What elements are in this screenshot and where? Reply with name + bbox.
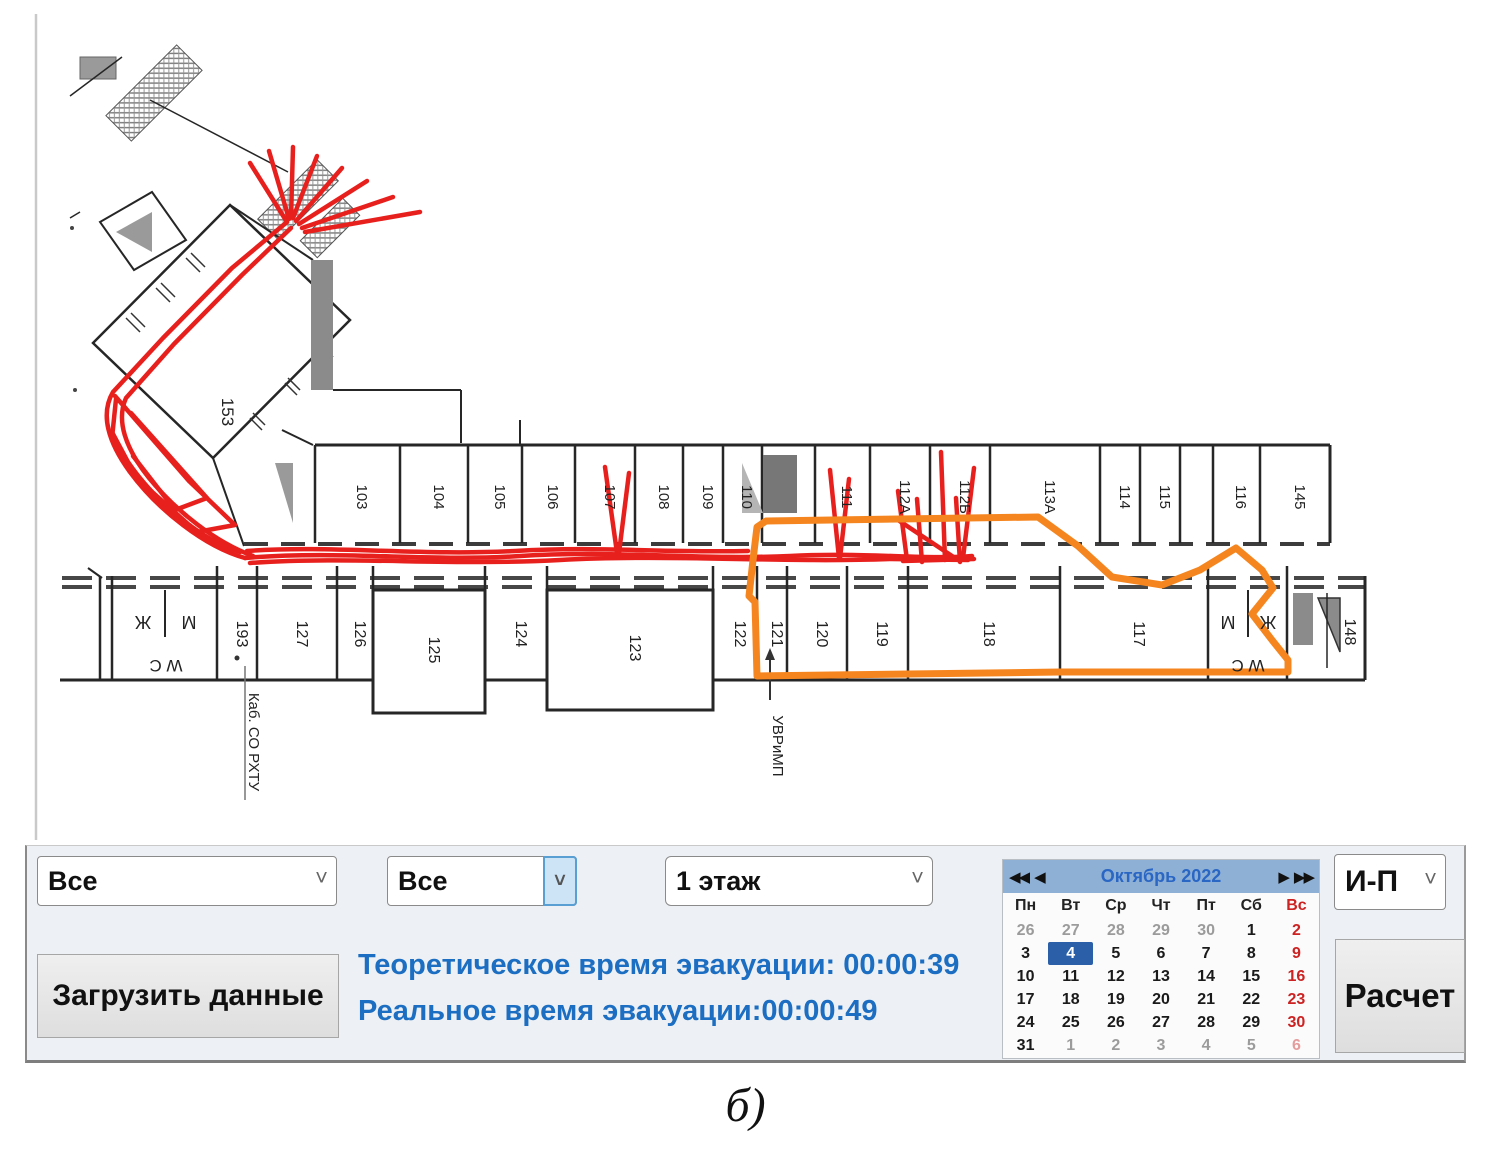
calendar-day[interactable]: 25	[1048, 1011, 1093, 1034]
group-filter-select[interactable]: Все ˅	[387, 856, 577, 906]
room-label: 119	[873, 621, 890, 647]
room-label: 122	[731, 621, 748, 648]
calendar-day[interactable]: 20	[1138, 988, 1183, 1011]
calendar-header: ◀◀ ◀ Октябрь 2022 ▶ ▶▶	[1003, 860, 1319, 893]
calendar-day[interactable]: 8	[1229, 942, 1274, 965]
fast-next-month-icon[interactable]: ▶▶	[1291, 868, 1319, 886]
room-label: УВРиМП	[769, 715, 786, 776]
weekday-label: Чт	[1138, 893, 1183, 919]
calendar-day[interactable]: 10	[1003, 965, 1048, 988]
room-label: 126	[351, 621, 368, 648]
calendar-day[interactable]: 5	[1229, 1034, 1274, 1057]
calendar-day[interactable]: 22	[1229, 988, 1274, 1011]
fast-prev-month-icon[interactable]: ◀◀	[1003, 868, 1031, 886]
calendar-day[interactable]: 2	[1274, 919, 1319, 942]
calendar-weekdays: ПнВтСрЧтПтСбВс	[1003, 893, 1319, 919]
calendar-day[interactable]: 24	[1003, 1011, 1048, 1034]
calendar-day[interactable]: 5	[1093, 942, 1138, 965]
calendar-day[interactable]: 12	[1093, 965, 1138, 988]
room-label: 148	[1341, 619, 1358, 646]
room-label: 113А	[1041, 480, 1058, 514]
weekday-label: Ср	[1093, 893, 1138, 919]
room-label: Каб. СО РХТУ	[245, 693, 262, 792]
people-filter-select[interactable]: Все ˅	[37, 856, 337, 906]
room-label: 123	[626, 635, 643, 662]
calendar-day[interactable]: 6	[1274, 1034, 1319, 1057]
calendar-day[interactable]: 16	[1274, 965, 1319, 988]
calendar-day[interactable]: 19	[1093, 988, 1138, 1011]
annotation-leaders	[235, 648, 776, 800]
room-label: 108	[655, 484, 672, 509]
calendar-day[interactable]: 6	[1138, 942, 1183, 965]
diagonal-wing	[70, 45, 520, 546]
group-filter-value: Все	[398, 866, 448, 897]
room-label: 114	[1116, 485, 1133, 509]
chevron-down-icon: ˅	[1424, 866, 1437, 892]
calendar-day[interactable]: 27	[1138, 1011, 1183, 1034]
load-data-button[interactable]: Загрузить данные	[37, 954, 339, 1038]
calendar-day[interactable]: 1	[1229, 919, 1274, 942]
calendar-day[interactable]: 23	[1274, 988, 1319, 1011]
calendar-day[interactable]: 21	[1184, 988, 1229, 1011]
room-label: 117	[1130, 621, 1147, 647]
calendar-day[interactable]: 3	[1138, 1034, 1183, 1057]
calendar-day[interactable]: 29	[1138, 919, 1183, 942]
room-label: М	[1221, 612, 1236, 632]
evacuation-times: Теоретическое время эвакуации: 00:00:39 …	[358, 942, 1018, 1034]
weekday-label: Вс	[1274, 893, 1319, 919]
calendar-day[interactable]: 31	[1003, 1034, 1048, 1057]
room-label: 106	[544, 484, 561, 509]
room-label: 124	[512, 621, 529, 648]
room-label: 145	[1291, 484, 1308, 509]
calendar-day[interactable]: 17	[1003, 988, 1048, 1011]
floor-select[interactable]: 1 этаж ˅	[665, 856, 933, 906]
calendar-day[interactable]: 26	[1093, 1011, 1138, 1034]
weekday-label: Пн	[1003, 893, 1048, 919]
weekday-label: Пт	[1184, 893, 1229, 919]
room-label: 118	[980, 621, 997, 647]
figure-caption: б)	[0, 1078, 1491, 1133]
calendar-day[interactable]: 13	[1138, 965, 1183, 988]
room-label: 109	[699, 484, 716, 509]
calendar-day[interactable]: 29	[1229, 1011, 1274, 1034]
theoretical-time-label: Теоретическое время эвакуации: 00:00:39	[358, 942, 1018, 988]
mode-select-value: И-П	[1345, 865, 1398, 899]
floor-plan: 103104105106107108109110111112А112Б113А1…	[0, 0, 1491, 845]
room-label: 105	[491, 484, 508, 509]
room-label: 112А	[896, 480, 913, 514]
room-label: 193	[233, 621, 250, 648]
floor-select-value: 1 этаж	[676, 866, 760, 897]
mode-select[interactable]: И-П ˅	[1334, 854, 1446, 910]
room-label: 127	[293, 621, 310, 648]
room-label: М	[182, 612, 197, 632]
weekday-label: Вт	[1048, 893, 1093, 919]
chevron-down-icon: ˅	[911, 865, 924, 891]
calendar-day[interactable]: 28	[1093, 919, 1138, 942]
room-label: 115	[1156, 485, 1173, 509]
calendar-day[interactable]: 7	[1184, 942, 1229, 965]
chevron-down-icon: ˅	[315, 865, 328, 891]
calendar-day[interactable]: 28	[1184, 1011, 1229, 1034]
calendar-day[interactable]: 1	[1048, 1034, 1093, 1057]
room-label: 121	[768, 621, 785, 648]
room-label: W C	[1231, 656, 1264, 675]
room-label: 112Б	[956, 480, 973, 514]
prev-month-icon[interactable]: ◀	[1031, 868, 1047, 886]
calendar-day[interactable]: 26	[1003, 919, 1048, 942]
calendar-day[interactable]: 4	[1048, 942, 1093, 965]
room-label: 111	[838, 486, 855, 509]
chevron-down-icon[interactable]: ˅	[543, 856, 577, 906]
calendar-day[interactable]: 3	[1003, 942, 1048, 965]
calendar-day[interactable]: 9	[1274, 942, 1319, 965]
calendar-title[interactable]: Октябрь 2022	[1047, 866, 1276, 887]
calc-button[interactable]: Расчет	[1335, 939, 1465, 1053]
room-label: 104	[430, 484, 447, 509]
room-label: 107	[601, 484, 618, 509]
weekday-label: Сб	[1229, 893, 1274, 919]
calendar-grid: 2627282930123456789101112131415161718192…	[1003, 919, 1319, 1057]
room-label: 153	[218, 398, 237, 426]
real-time-label: Реальное время эвакуации:00:00:49	[358, 988, 1018, 1034]
next-month-icon[interactable]: ▶	[1275, 868, 1291, 886]
room-label: W C	[149, 656, 182, 675]
control-panel: Все ˅ Все ˅ 1 этаж ˅ И-П ˅ Загрузить дан…	[25, 845, 1466, 1063]
room-label: 120	[813, 621, 830, 648]
calendar-day[interactable]: 2	[1093, 1034, 1138, 1057]
people-filter-value: Все	[48, 866, 98, 897]
room-label: 110	[738, 485, 755, 509]
calendar-day[interactable]: 11	[1048, 965, 1093, 988]
calendar-day[interactable]: 27	[1048, 919, 1093, 942]
room-label: Ж	[1259, 612, 1276, 632]
calendar: ◀◀ ◀ Октябрь 2022 ▶ ▶▶ ПнВтСрЧтПтСбВс 26…	[1002, 859, 1320, 1059]
calendar-day[interactable]: 30	[1184, 919, 1229, 942]
calendar-day[interactable]: 30	[1274, 1011, 1319, 1034]
calendar-day[interactable]: 14	[1184, 965, 1229, 988]
room-label: 116	[1232, 485, 1249, 509]
room-label: 103	[353, 484, 370, 509]
page: 103104105106107108109110111112А112Б113А1…	[0, 0, 1491, 1149]
room-label: Ж	[134, 612, 151, 632]
room-label: 125	[425, 637, 442, 664]
calendar-day[interactable]: 18	[1048, 988, 1093, 1011]
calendar-day[interactable]: 4	[1184, 1034, 1229, 1057]
calendar-day[interactable]: 15	[1229, 965, 1274, 988]
